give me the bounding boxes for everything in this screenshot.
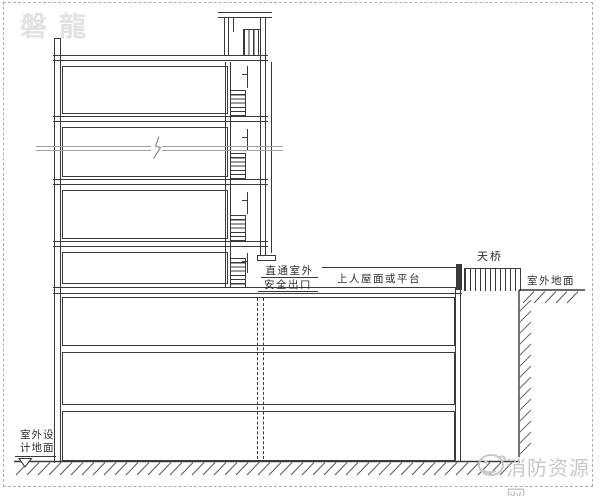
level-marker-triangle (19, 459, 32, 468)
ground-hatch-bottom (16, 463, 512, 476)
design-ground-label-underline (15, 456, 56, 457)
watermark-logo-icon (474, 448, 508, 480)
design-ground-label: 室外设 计地面 (20, 429, 55, 454)
earth-face-hatch (519, 300, 531, 455)
bridge-label: 天桥 (477, 251, 503, 263)
roof-platform-label: 上人屋面或平台 (337, 273, 421, 285)
outdoor-ground-label: 室外地面 (527, 275, 575, 287)
exit-label-line1: 直通室外 (261, 265, 318, 278)
exit-label-line2: 安全出口 (258, 279, 318, 292)
design-ground-label-line2: 计地面 (20, 442, 55, 455)
design-ground-label-line1: 室外设 (20, 429, 55, 442)
ground-hatch-right (523, 292, 578, 304)
watermark-brand-top: 磐龍 (20, 5, 98, 44)
ground-and-symbols-layer (0, 0, 600, 496)
building-section-diagram: 直通室外 安全出口 上人屋面或平台 天桥 室外地面 室外设 计地面 磐龍 消防资… (0, 0, 600, 496)
watermark-brand-bottom: 消防资源网 (506, 452, 600, 496)
